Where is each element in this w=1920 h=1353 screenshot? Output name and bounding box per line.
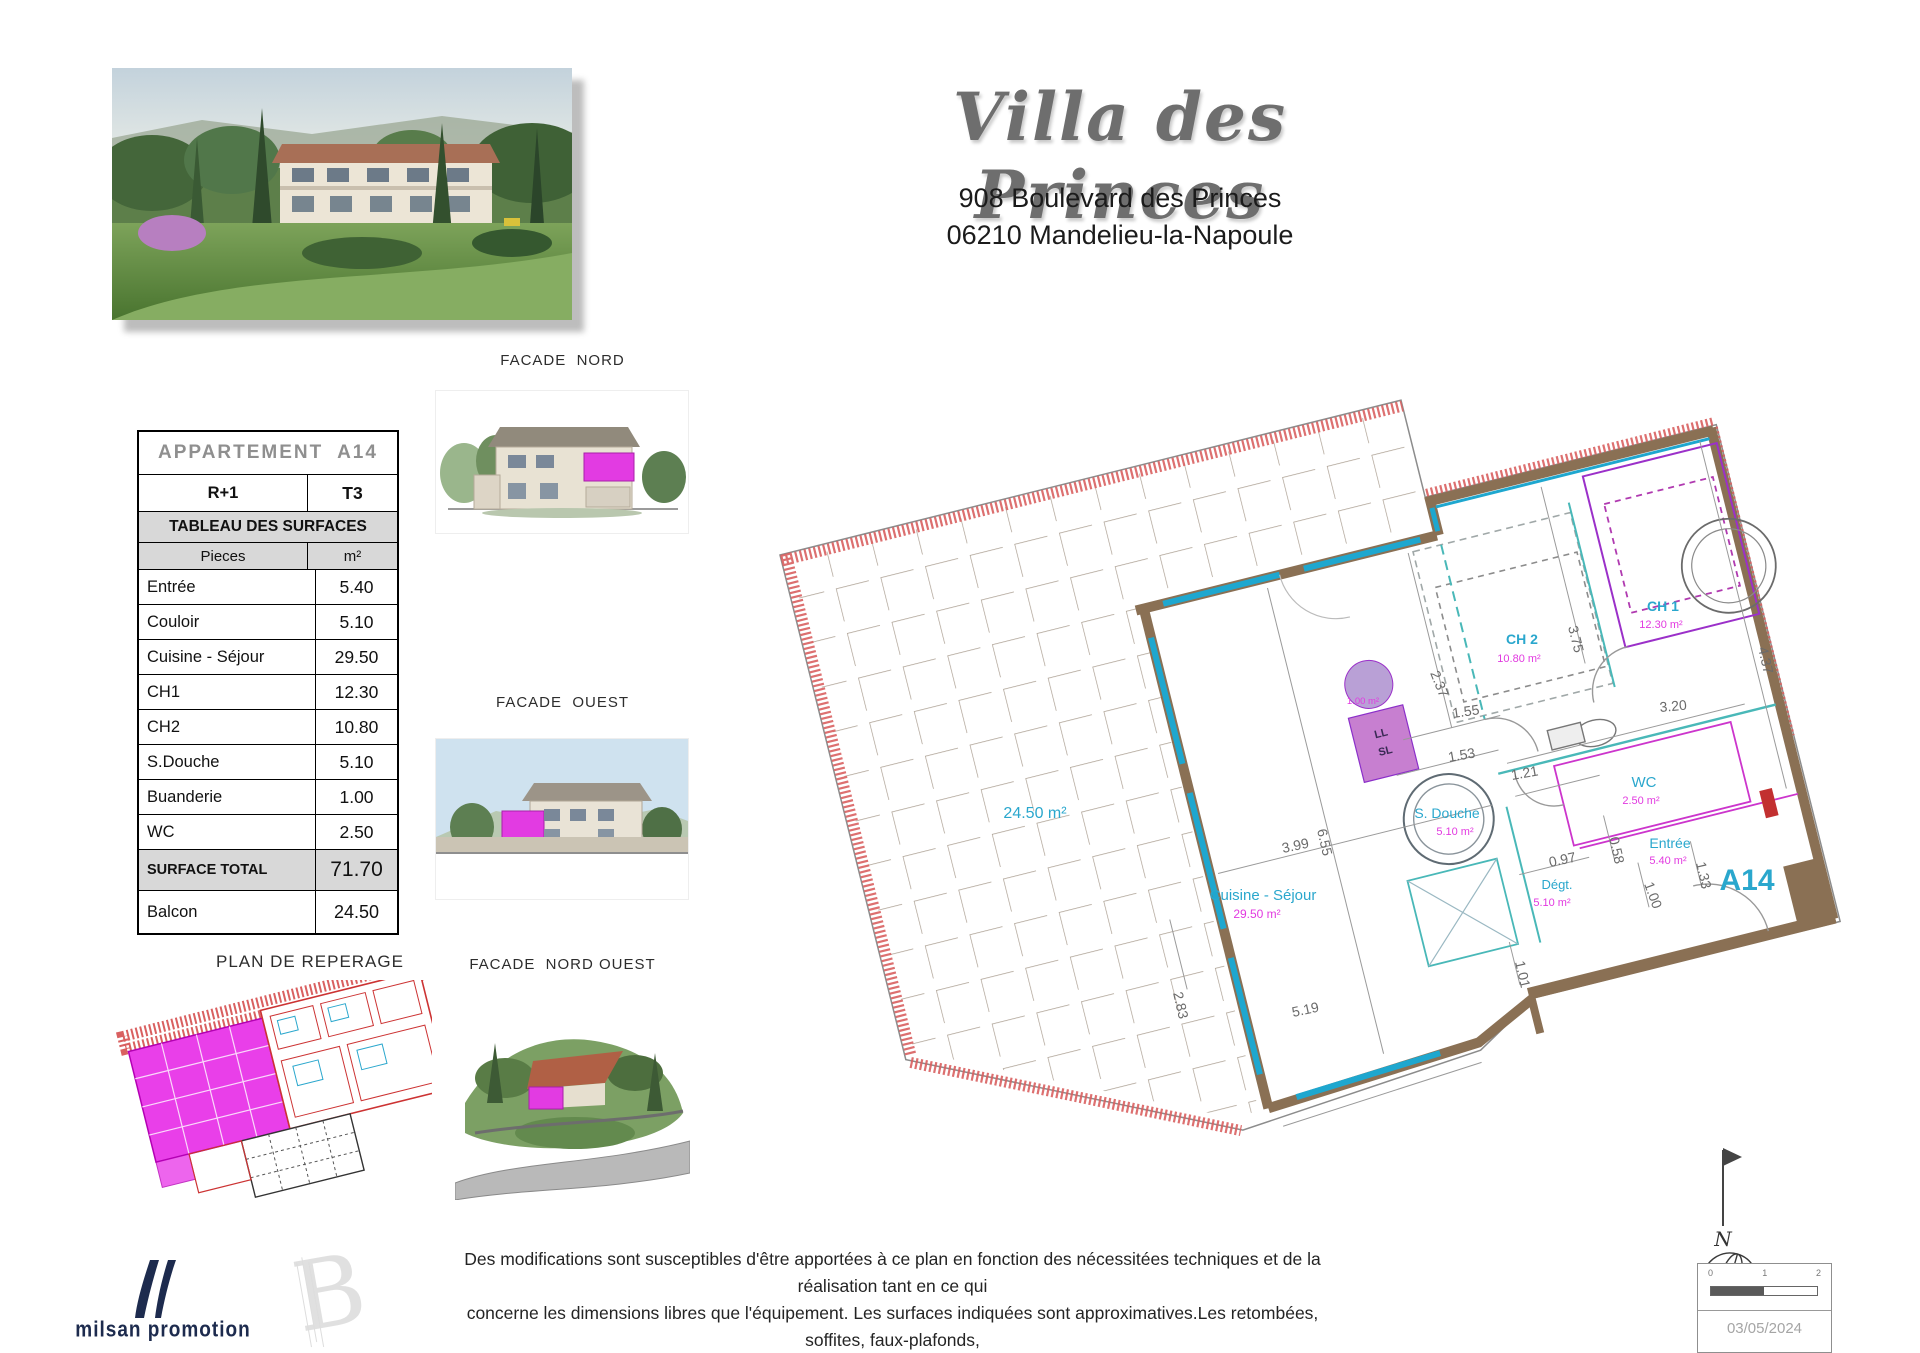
room-name-ch1: CH 1 <box>1647 598 1679 614</box>
room-area-degt: 5.10 m² <box>1533 897 1571 909</box>
level-cell: R+1 <box>139 475 308 511</box>
table-row: Entrée5.40 <box>139 570 397 605</box>
type-cell: T3 <box>308 475 397 511</box>
facade-ouest-title: FACADE OUEST <box>440 694 685 711</box>
disclaimer-line-2: concerne les dimensions libres que l'équ… <box>440 1300 1345 1353</box>
disclaimer: Des modifications sont susceptibles d'êt… <box>440 1246 1345 1353</box>
room-area-entree: 5.40 m² <box>1649 855 1687 867</box>
table-row: CH210.80 <box>139 710 397 745</box>
address-line-1: 908 Boulevard des Princes <box>830 180 1410 217</box>
total-label: SURFACE TOTAL <box>139 850 316 890</box>
milsan-logo-text: milsan promotion <box>58 1318 268 1343</box>
scale-tick-0: 0 <box>1708 1268 1713 1278</box>
room-area-ch2: 10.80 m² <box>1497 653 1541 665</box>
plan-geometry: LL SL <box>780 380 1880 1155</box>
scale-bar <box>1710 1286 1818 1296</box>
row-value: 5.10 <box>316 745 397 779</box>
architect-stamp-watermark: B <box>286 1232 409 1353</box>
room-name-cuisine: Cuisine - Séjour <box>1210 887 1317 904</box>
row-value: 1.00 <box>316 780 397 814</box>
table-row: Buanderie1.00 <box>139 780 397 815</box>
facade-nord-drawing <box>435 390 689 534</box>
villa-photo <box>112 68 572 320</box>
plan-reperage-title: PLAN DE REPERAGE <box>190 952 430 972</box>
room-area-buanderie: 1.00 m² <box>1347 696 1379 707</box>
row-label: CH2 <box>139 710 316 744</box>
room-name-degt: Dégt. <box>1541 877 1572 892</box>
row-value: 5.40 <box>316 570 397 604</box>
disclaimer-line-1: Des modifications sont susceptibles d'êt… <box>440 1246 1345 1300</box>
balcony-area-label: 24.50 m² <box>1003 805 1067 822</box>
scale-ticks: 0 1 2 <box>1708 1268 1821 1280</box>
north-arrow-pennant <box>1723 1148 1742 1166</box>
row-label: WC <box>139 815 316 849</box>
table-section-title: TABLEAU DES SURFACES <box>139 512 397 542</box>
row-label: CH1 <box>139 675 316 709</box>
row-value: 5.10 <box>316 605 397 639</box>
room-area-ch1: 12.30 m² <box>1639 619 1683 631</box>
svg-text:3.20: 3.20 <box>1659 697 1688 715</box>
milsan-logo-mark <box>120 1258 200 1322</box>
scale-date-box: 0 1 2 03/05/2024 <box>1697 1263 1832 1353</box>
table-row: Cuisine - Séjour29.50 <box>139 640 397 675</box>
balcon-value: 24.50 <box>316 891 397 933</box>
room-area-sdouche: 5.10 m² <box>1436 826 1474 838</box>
table-row: WC2.50 <box>139 815 397 850</box>
north-letter: N <box>1713 1227 1733 1251</box>
table-row: CH112.30 <box>139 675 397 710</box>
row-label: Entrée <box>139 570 316 604</box>
room-area-cuisine: 29.50 m² <box>1233 907 1280 921</box>
row-value: 29.50 <box>316 640 397 674</box>
table-total-row: SURFACE TOTAL 71.70 <box>139 850 397 891</box>
balcon-label: Balcon <box>139 891 316 933</box>
date-stamp: 03/05/2024 <box>1698 1320 1831 1337</box>
room-area-wc: 2.50 m² <box>1622 795 1660 807</box>
facade-ouest-drawing <box>435 738 689 900</box>
row-label: Buanderie <box>139 780 316 814</box>
row-value: 10.80 <box>316 710 397 744</box>
room-name-sdouche: S. Douche <box>1414 805 1480 821</box>
table-row: Couloir5.10 <box>139 605 397 640</box>
table-row: S.Douche5.10 <box>139 745 397 780</box>
room-name-wc: WC <box>1632 774 1657 791</box>
surface-table: APPARTEMENT A14 R+1 T3 TABLEAU DES SURFA… <box>137 430 399 935</box>
col-header-unit: m² <box>308 543 397 569</box>
room-name-ch2: CH 2 <box>1506 631 1538 647</box>
table-balcon-row: Balcon 24.50 <box>139 891 397 933</box>
col-header-rooms: Pieces <box>139 543 308 569</box>
total-value: 71.70 <box>316 850 397 890</box>
row-value: 2.50 <box>316 815 397 849</box>
row-label: S.Douche <box>139 745 316 779</box>
facade-nord-ouest-title: FACADE NORD OUEST <box>440 956 685 973</box>
facade-nord-ouest-drawing <box>455 983 690 1200</box>
unit-label: A14 <box>1719 864 1774 897</box>
facade-nord-title: FACADE NORD <box>440 352 685 369</box>
row-label: Cuisine - Séjour <box>139 640 316 674</box>
project-address: 908 Boulevard des Princes 06210 Mandelie… <box>830 180 1410 254</box>
row-value: 12.30 <box>316 675 397 709</box>
room-name-entree: Entrée <box>1649 835 1690 851</box>
scale-tick-2: 2 <box>1816 1268 1821 1278</box>
table-title: APPARTEMENT A14 <box>139 432 397 474</box>
scale-tick-1: 1 <box>1762 1268 1767 1278</box>
floor-plan: LL SL <box>755 380 1880 1155</box>
plan-reperage-map <box>112 980 432 1200</box>
row-label: Couloir <box>139 605 316 639</box>
address-line-2: 06210 Mandelieu-la-Napoule <box>830 217 1410 254</box>
plan-sheet: Villa des Princes 908 Boulevard des Prin… <box>0 0 1920 1353</box>
